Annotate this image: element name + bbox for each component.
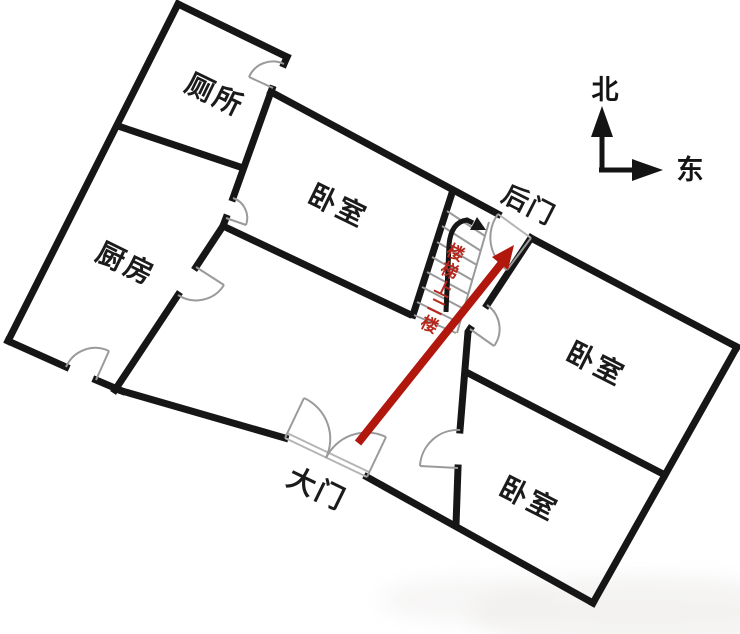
- room-label-bedroom-right-lower: 卧室: [494, 470, 564, 527]
- wall-toilet-kitchen-divider: [118, 126, 243, 168]
- floor-plan-svg: 楼 梯 上 二 楼 厕所 厨房 卧室 卧室 卧室 后门 大门 北 东: [0, 0, 740, 634]
- kitchen-door-arc: [178, 285, 224, 300]
- wall-wing-top: [178, 4, 287, 57]
- compass: 北 东: [591, 75, 704, 185]
- wall-wing-bottom: [8, 341, 66, 367]
- floor-plan-figure: 楼 梯 上 二 楼 厕所 厨房 卧室 卧室 卧室 后门 大门 北 东: [0, 0, 740, 634]
- wall-bottom-left: [122, 391, 285, 438]
- room-label-toilet: 厕所: [180, 67, 249, 122]
- paper-shading: [380, 578, 560, 622]
- compass-east-label: 东: [677, 154, 704, 185]
- main-door-left-leaf: [285, 398, 304, 438]
- wall-top-right: [531, 238, 737, 347]
- toilet-door-arc: [249, 61, 284, 77]
- compass-north-arrowhead: [591, 106, 613, 137]
- main-door-right-leaf: [367, 437, 386, 477]
- wall-right-bedrooms-divider: [466, 372, 665, 475]
- wall-wing-right: [284, 57, 287, 64]
- bedroom-right-lower-door-arc: [420, 430, 460, 466]
- wall-bedroom1-bottom: [223, 226, 409, 314]
- wall-corridor: [456, 468, 458, 525]
- compass-north-label: 北: [592, 75, 619, 105]
- room-label-bedroom-top: 卧室: [303, 178, 373, 234]
- kitchen-door-leaf: [196, 267, 224, 285]
- toilet-door-leaf: [249, 77, 273, 88]
- compass-east-arrowhead: [632, 159, 663, 181]
- label-main-door: 大门: [282, 461, 351, 516]
- wall-wing-left: [8, 4, 178, 341]
- bedroom-right-upper-door-leaf: [470, 329, 494, 346]
- labels: 厕所 厨房 卧室 卧室 卧室 后门 大门: [91, 67, 631, 526]
- label-back-door: 后门: [497, 179, 561, 231]
- room-label-bedroom-right-upper: 卧室: [561, 335, 631, 392]
- walls: [8, 4, 737, 603]
- bedroom1-door-leaf: [226, 218, 246, 225]
- wing-bottom-door-leaf: [96, 351, 109, 380]
- wall-wing-right: [115, 295, 178, 390]
- bedroom-right-upper-door-arc: [487, 305, 500, 346]
- wall-top-left: [271, 92, 498, 214]
- room-label-kitchen: 厨房: [91, 236, 161, 292]
- wall-corridor: [460, 329, 470, 430]
- bedroom-right-lower-door-leaf: [420, 466, 458, 468]
